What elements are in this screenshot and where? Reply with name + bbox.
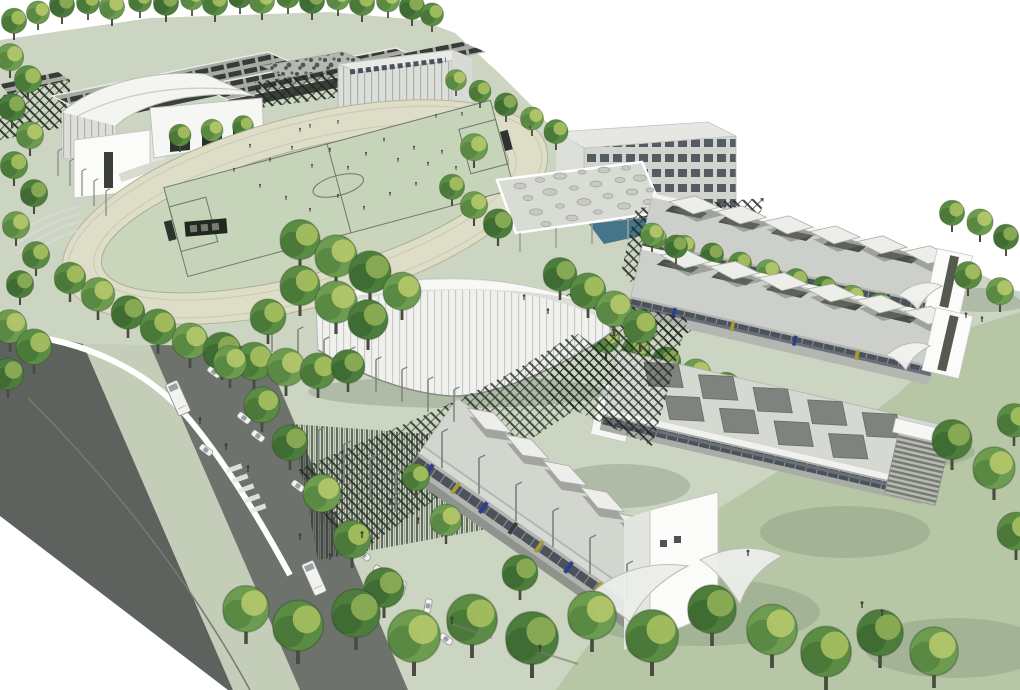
rendering-canvas [0, 0, 1020, 690]
end-window [660, 540, 667, 547]
end-window [674, 536, 681, 543]
masterplan-rendering [0, 0, 1020, 690]
annex-door [104, 152, 113, 188]
